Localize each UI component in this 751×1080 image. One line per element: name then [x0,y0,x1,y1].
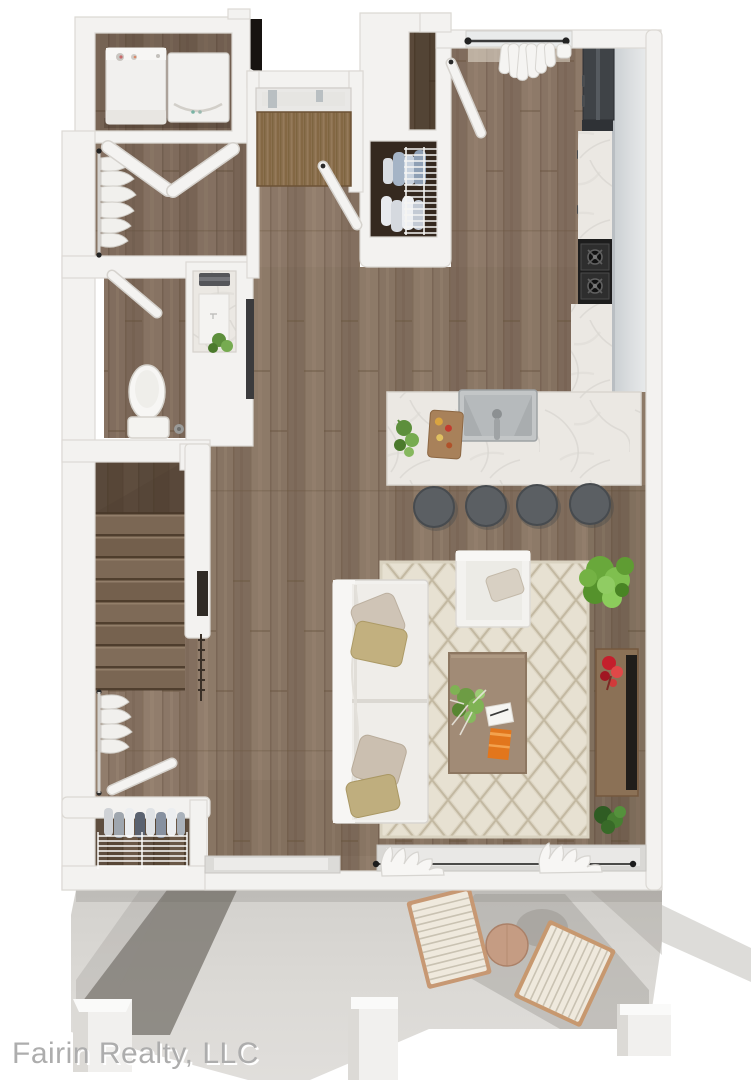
svg-text:Fairin Realty, LLC: Fairin Realty, LLC [12,1037,259,1070]
